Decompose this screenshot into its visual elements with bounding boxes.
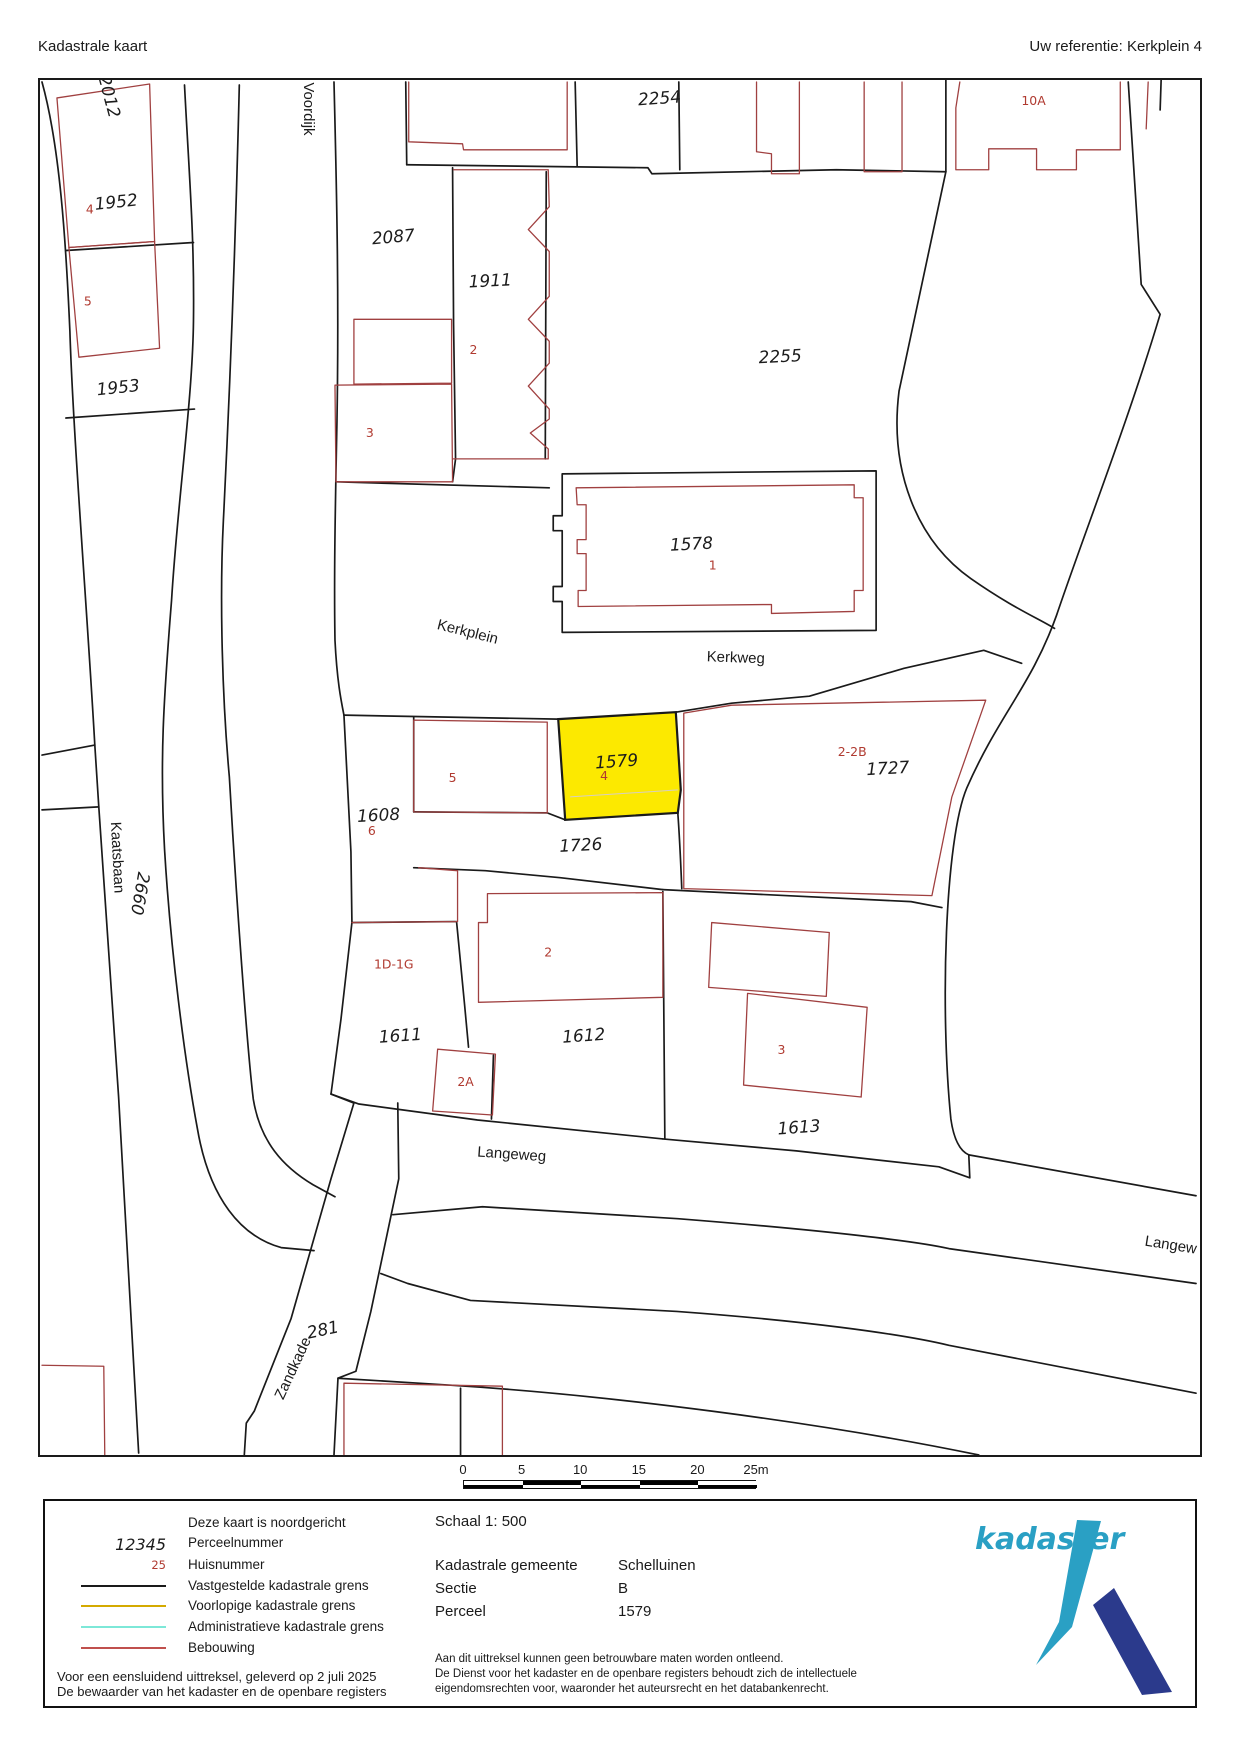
parcel-number-label: 1953 <box>96 375 141 399</box>
scale-tick: 25m <box>743 1462 768 1477</box>
parcel-number-label: 1608 <box>356 804 400 826</box>
parcel-number-label: 1952 <box>94 189 139 213</box>
footer-panel: Deze kaart is noordgericht12345Perceelnu… <box>43 1499 1197 1708</box>
legend-row: 12345Perceelnummer <box>63 1535 443 1555</box>
parcel-number-label: 1613 <box>777 1115 821 1138</box>
legend-row: Administratieve kadastrale grens <box>63 1619 443 1639</box>
scale-tick: 10 <box>573 1462 587 1477</box>
parcel-number-label: 1612 <box>562 1024 606 1047</box>
street-name-label: Langew <box>1144 1233 1199 1258</box>
house-number-label: 3 <box>777 1042 785 1057</box>
house-number-label: 1 <box>709 558 717 573</box>
street-name-label: Kerkweg <box>706 648 765 667</box>
legend-row: Deze kaart is noordgericht <box>63 1515 443 1535</box>
street-name-label: Zandkade <box>271 1335 314 1402</box>
scale-tick: 5 <box>518 1462 525 1477</box>
house-number-label: 2 <box>470 342 478 357</box>
parcel-number-label: 2012 <box>94 80 124 120</box>
parcel-number-label: 1611 <box>378 1024 422 1047</box>
kadaster-logo: kadaster <box>917 1501 1187 1706</box>
scale-bar-labels: 0510152025m <box>463 1462 763 1478</box>
legend-row: Bebouwing <box>63 1640 443 1660</box>
house-number-label: 5 <box>449 770 457 785</box>
reference-text: Uw referentie: Kerkplein 4 <box>1029 38 1202 55</box>
disclaimer-line: De Dienst voor het kadaster en de openba… <box>435 1668 857 1680</box>
kadaster-logo-text: kadaster <box>975 1522 1126 1557</box>
parcel-number-label: 281 <box>305 1316 341 1342</box>
scale-bar-segments <box>463 1480 756 1489</box>
street-name-label: Kerkplein <box>435 616 500 648</box>
info-row: Kadastrale gemeenteSchelluinen <box>435 1557 578 1574</box>
info-row: Perceel1579 <box>435 1603 486 1620</box>
kadastrale-kaart-page: Kadastrale kaart Uw referentie: Kerkplei… <box>0 0 1240 1755</box>
house-number-label: 1D-1G <box>374 956 414 971</box>
parcel-number-label: 1578 <box>669 533 713 555</box>
house-number-label: 4 <box>86 202 94 217</box>
house-number-label: 5 <box>84 293 92 308</box>
house-number-label: 3 <box>366 425 374 440</box>
parcel-number-label: 1727 <box>866 757 910 779</box>
house-number-label: 2 <box>544 944 552 959</box>
parcel-number-label: 2660 <box>127 871 154 917</box>
parcel-number-label: 2087 <box>371 225 416 249</box>
house-number-label: 10A <box>1021 93 1046 108</box>
parcel-number-label: 1726 <box>559 834 603 856</box>
disclaimer-line: Aan dit uittreksel kunnen geen betrouwba… <box>435 1653 783 1665</box>
legend-row: Voorlopige kadastrale grens <box>63 1598 443 1618</box>
street-name-label: Langeweg <box>477 1143 547 1165</box>
info-row: SectieB <box>435 1580 477 1597</box>
parcel-number-label: 1911 <box>468 269 512 291</box>
house-number-label: 6 <box>368 823 376 838</box>
house-number-label: 2A <box>457 1074 474 1089</box>
footer-note: Voor een eensluidend uittreksel, gelever… <box>57 1669 376 1684</box>
legend-row: Vastgestelde kadastrale grens <box>63 1578 443 1598</box>
cadastral-map[interactable]: 2012195219532087191122542255157815791727… <box>38 78 1202 1457</box>
scale-bar: 0510152025m <box>463 1462 763 1496</box>
disclaimer-line: eigendomsrechten voor, waaronder het aut… <box>435 1683 829 1695</box>
house-number-label: 4 <box>600 768 608 783</box>
parcel-number-label: 2255 <box>758 345 802 367</box>
page-title: Kadastrale kaart <box>38 38 147 55</box>
house-number-label: 2-2B <box>838 744 867 759</box>
map-canvas[interactable]: 2012195219532087191122542255157815791727… <box>40 80 1200 1455</box>
scale-text: Schaal 1: 500 <box>435 1513 527 1530</box>
scale-tick: 15 <box>632 1462 646 1477</box>
footer-note: De bewaarder van het kadaster en de open… <box>57 1684 387 1699</box>
kadaster-logo-navy-shape <box>1093 1588 1172 1695</box>
scale-tick: 0 <box>459 1462 466 1477</box>
street-name-label: Voordijk <box>300 82 317 136</box>
parcel-number-label: 2254 <box>637 86 681 109</box>
street-name-label: Kaatsbaan <box>107 821 128 893</box>
scale-tick: 20 <box>690 1462 704 1477</box>
legend-row: 25Huisnummer <box>63 1557 443 1577</box>
